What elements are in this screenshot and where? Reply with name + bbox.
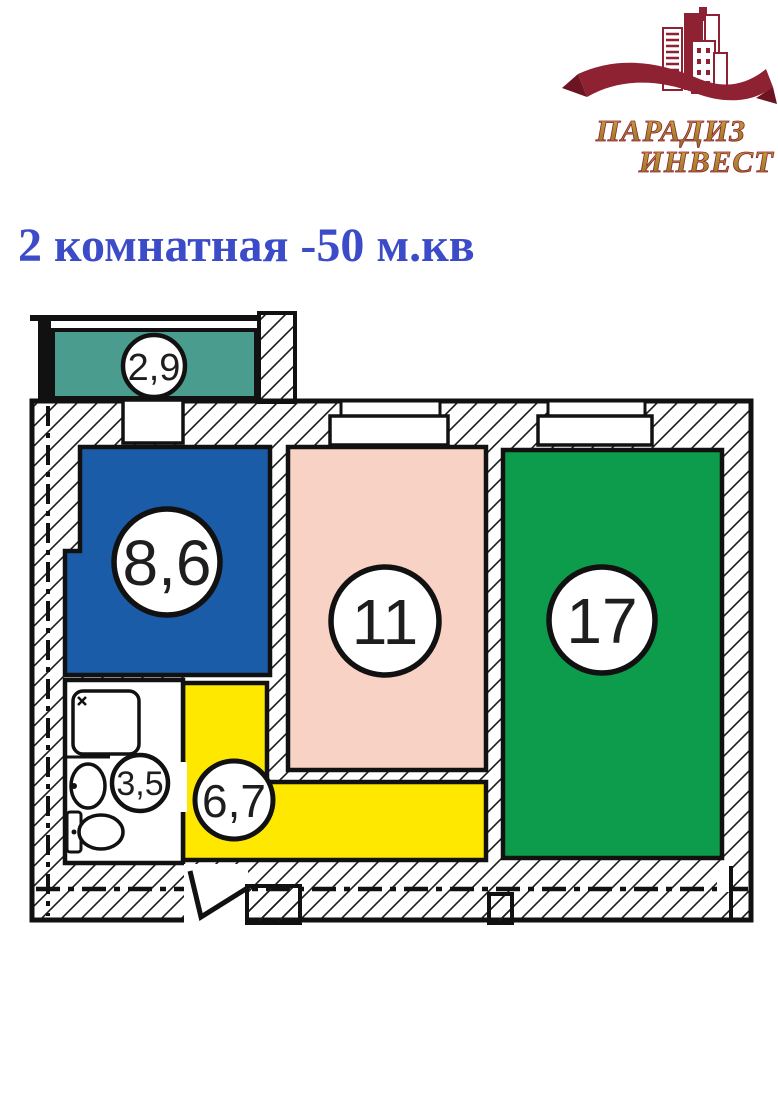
- balcony-wall-column: [259, 313, 295, 402]
- balcony-door-window: [123, 400, 183, 443]
- area-label-corridor: 6,7: [202, 775, 266, 827]
- area-label-room-8-6: 8,6: [123, 527, 212, 599]
- brand-name-line1: ПАРАДИЗ: [595, 113, 746, 148]
- area-label-room-11: 11: [352, 586, 418, 658]
- sink-icon: [71, 764, 105, 808]
- bathtub-icon: [73, 691, 139, 754]
- window-room-11: [330, 401, 448, 445]
- area-label-balcony: 2,9: [128, 347, 181, 389]
- floor-plan: 2,9 8,6 11 17 3,5 6,7: [30, 313, 751, 925]
- area-badge-corridor: 6,7: [195, 761, 273, 839]
- floor-plan-canvas: ПАРАДИЗ ИНВЕСТ: [0, 0, 778, 1100]
- area-badge-balcony: 2,9: [123, 335, 185, 397]
- balcony-post: [38, 321, 51, 401]
- balcony-railing: [30, 315, 258, 321]
- page: 2 комнатная -50 м.кв: [0, 0, 778, 1100]
- bathroom-door-opening: [175, 762, 187, 812]
- company-logo: ПАРАДИЗ ИНВЕСТ: [562, 7, 777, 179]
- area-label-bathroom: 3,5: [116, 765, 163, 803]
- wall-notch: [717, 866, 730, 892]
- ribbon-icon: [562, 63, 777, 104]
- area-badge-bathroom: 3,5: [112, 755, 168, 811]
- area-badge-room-11: 11: [331, 567, 439, 675]
- entrance-step: [247, 886, 300, 923]
- window-room-17: [538, 401, 652, 445]
- area-badge-room-17: 17: [549, 567, 655, 673]
- wall-pier: [489, 894, 512, 923]
- area-label-room-17: 17: [566, 585, 637, 657]
- brand-name-line2: ИНВЕСТ: [638, 144, 774, 179]
- toilet-icon: [67, 812, 123, 852]
- area-badge-room-8-6: 8,6: [114, 509, 220, 615]
